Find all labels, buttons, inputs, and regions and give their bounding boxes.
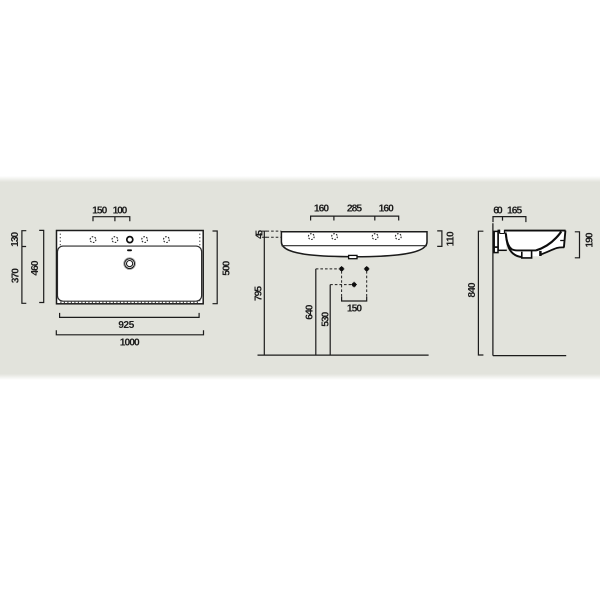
svg-text:150: 150 bbox=[92, 205, 107, 216]
svg-text:150: 150 bbox=[347, 303, 362, 314]
svg-text:500: 500 bbox=[221, 260, 232, 275]
svg-text:100: 100 bbox=[113, 205, 128, 216]
svg-text:165: 165 bbox=[507, 205, 522, 216]
svg-text:60: 60 bbox=[493, 205, 503, 216]
svg-text:925: 925 bbox=[118, 320, 134, 331]
svg-text:795: 795 bbox=[253, 286, 264, 301]
svg-text:130: 130 bbox=[10, 231, 21, 246]
svg-text:285: 285 bbox=[347, 203, 362, 214]
svg-text:190: 190 bbox=[585, 232, 596, 247]
svg-text:530: 530 bbox=[321, 311, 332, 326]
svg-text:1000: 1000 bbox=[120, 337, 140, 348]
svg-text:840: 840 bbox=[467, 282, 478, 297]
svg-text:160: 160 bbox=[379, 203, 394, 214]
svg-text:160: 160 bbox=[314, 203, 329, 214]
svg-text:640: 640 bbox=[305, 304, 316, 319]
svg-text:370: 370 bbox=[10, 268, 21, 283]
svg-text:460: 460 bbox=[30, 260, 41, 275]
svg-text:110: 110 bbox=[446, 231, 457, 246]
